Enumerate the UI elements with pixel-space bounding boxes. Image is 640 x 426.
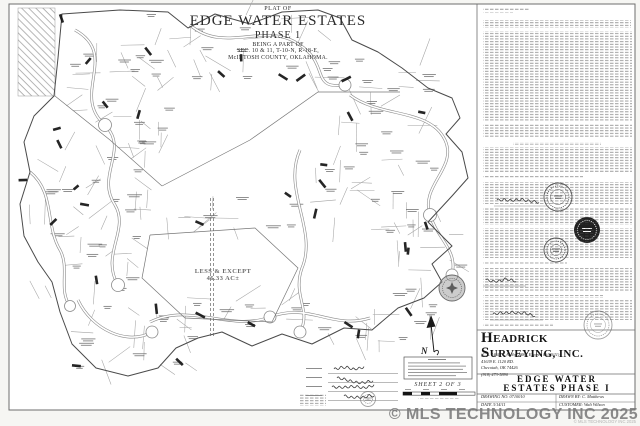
firm-license: (C.A. 1461, C.A. No. 2886, Expires 06/30… [481, 353, 559, 358]
less-and-except-label: LESS & EXCEPT 46.33 AC± [176, 268, 270, 283]
firm-address1: 41639 E. 1120 RD. [481, 360, 559, 365]
project-line2: ESTATES PHASE I [479, 384, 635, 393]
seal-stamp-icon [439, 275, 465, 301]
title-section: SEC. 10 & 11, T-10-N, R-18-E, [168, 48, 388, 55]
title-phase: PHASE 1 [168, 30, 388, 42]
firm-name-line1: HEADRICK [481, 331, 633, 346]
page-title: EDGE WATER ESTATES [168, 13, 388, 30]
dedication-text [483, 8, 632, 326]
title-being: BEING A PART OF [168, 42, 388, 49]
sheet-number-label: SHEET 2 OF 3 [402, 382, 474, 389]
firm-address2: Checotah, OK 74426 [481, 366, 559, 371]
less-except-line2: 46.33 AC± [176, 275, 270, 282]
plat-sheet: PLAT OF EDGE WATER ESTATES PHASE 1 BEING… [0, 0, 640, 426]
watermark-small: © MLS TECHNOLOGY INC 2025 [545, 420, 636, 425]
north-label: N [421, 346, 428, 356]
title-plat-of: PLAT OF [168, 6, 388, 13]
title-block: PLAT OF EDGE WATER ESTATES PHASE 1 BEING… [168, 6, 388, 62]
less-except-line1: LESS & EXCEPT [176, 268, 270, 275]
title-county: McINTOSH COUNTY, OKLAHOMA. [168, 55, 388, 62]
hatch-area [18, 8, 55, 96]
drawing-no-cell: DRAWING NO. 0710010 [481, 395, 525, 400]
drawn-by-cell: DRAWN BY: C. Matthews [559, 395, 604, 400]
project-name-block: EDGE WATER ESTATES PHASE I [479, 375, 635, 394]
seal-stamp-icon [361, 392, 376, 407]
legend-box [404, 357, 472, 379]
